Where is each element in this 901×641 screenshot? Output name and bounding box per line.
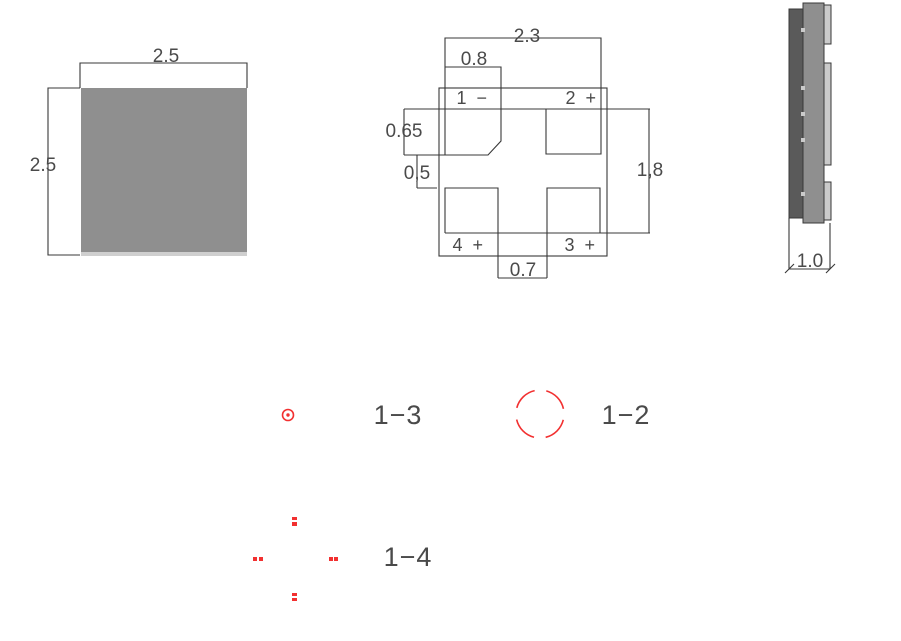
legend-label-1-4: 1−4 [384, 542, 433, 572]
dashed-circle-icon [516, 390, 564, 438]
side-view-body [803, 3, 824, 223]
pad-width-dimension-line [445, 67, 501, 88]
pad-span-dim-label: 1,8 [637, 160, 663, 181]
dot-cross-east-dot-1 [329, 557, 333, 561]
dot-cross-south-dot-1 [292, 593, 297, 596]
slot-width-dim-label: 0.7 [510, 260, 536, 281]
pad-2-outline [546, 109, 601, 154]
top-view: 2.5 2.5 [30, 46, 247, 256]
thickness-dim-label: 1.0 [797, 251, 823, 272]
package-outline [439, 88, 607, 256]
pad-height-dim-label: 0.65 [386, 121, 423, 142]
dot-cross-north-dot-2 [292, 522, 297, 526]
dot-cross-north-dot-1 [292, 517, 297, 520]
electrode-legend: 1−3 1−2 1−4 [253, 390, 650, 601]
pad-width-dim-label: 0.8 [461, 49, 487, 70]
cad-drawing-page: 2.5 2.5 2.3 0.8 0.65 0,5 1,8 0.7 1 − 2 +… [0, 0, 901, 641]
top-view-body [81, 88, 247, 252]
dot-cross-south-dot-2 [292, 598, 297, 601]
top-view-height-dim-label: 2.5 [30, 155, 56, 176]
dot-cross-east-dot-2 [334, 557, 338, 561]
side-view-notch-4 [801, 138, 805, 142]
dot-cross-west-dot-2 [259, 557, 263, 561]
pad-4-polarity-label: 4 + [452, 235, 485, 255]
pad-layout-view: 2.3 0.8 0.65 0,5 1,8 0.7 1 − 2 + 4 + 3 + [386, 26, 664, 281]
side-view-notch-3 [801, 112, 805, 116]
slot-height-dim-label: 0,5 [404, 163, 430, 184]
side-view-pad-middle [824, 63, 831, 165]
pad-2-polarity-label: 2 + [565, 88, 598, 108]
side-view-pad-bottom [824, 182, 831, 220]
legend-item-1-2: 1−2 [516, 390, 650, 438]
top-view-width-dim-label: 2.5 [153, 46, 179, 67]
legend-item-1-4: 1−4 [253, 517, 432, 601]
pad-4-outline [445, 188, 498, 233]
side-view: 1.0 [785, 3, 835, 273]
side-view-notch-5 [801, 192, 805, 196]
side-view-notch-1 [801, 28, 805, 32]
pad-3-polarity-label: 3 + [564, 235, 597, 255]
top-view-bottom-edge [81, 252, 247, 256]
technical-drawing-canvas: 2.5 2.5 2.3 0.8 0.65 0,5 1,8 0.7 1 − 2 +… [0, 0, 901, 641]
point-marker-center-dot [286, 413, 289, 416]
legend-label-1-2: 1−2 [602, 400, 651, 430]
overall-width-dim-label: 2.3 [514, 26, 540, 47]
dot-cross-west-dot-1 [253, 557, 257, 561]
side-view-notch-2 [801, 86, 805, 90]
legend-item-1-3: 1−3 [283, 400, 423, 430]
side-view-pad-top [824, 5, 831, 44]
legend-label-1-3: 1−3 [374, 400, 423, 430]
pad-1-polarity-label: 1 − [456, 88, 489, 108]
pad-3-outline [547, 188, 600, 233]
